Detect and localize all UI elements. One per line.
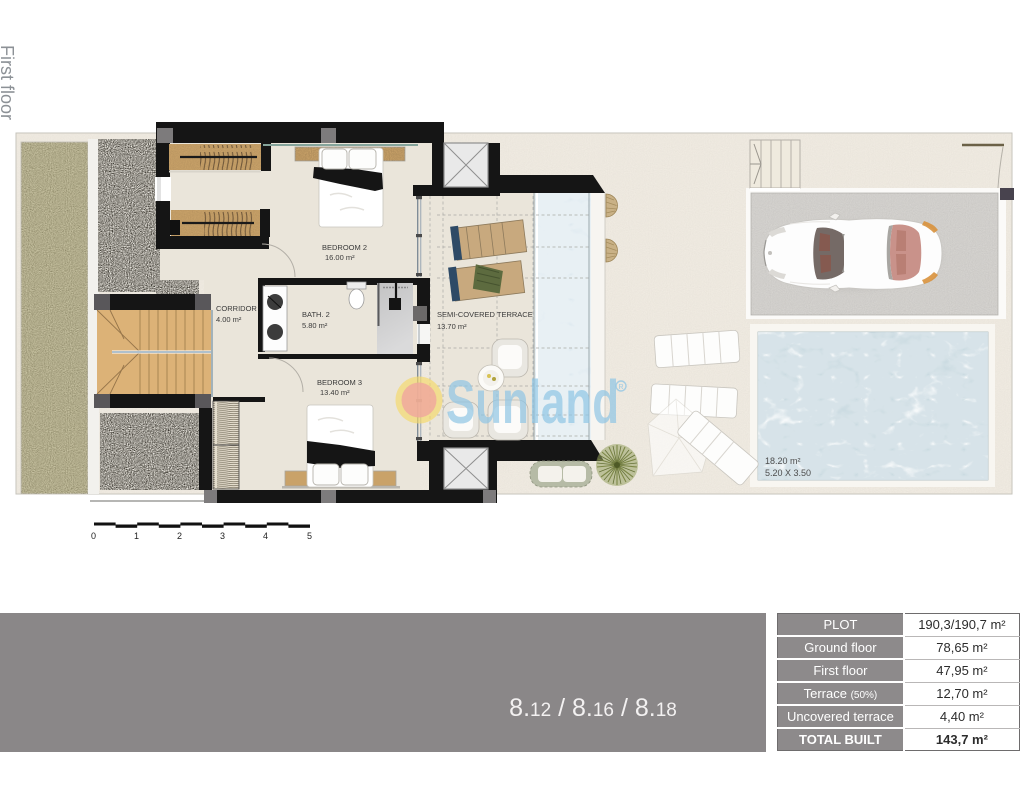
- svg-text:SEMI-COVERED TERRACE: SEMI-COVERED TERRACE: [437, 310, 533, 319]
- svg-text:18.20 m²: 18.20 m²: [765, 456, 801, 466]
- svg-text:2: 2: [177, 531, 182, 541]
- svg-text:5.80 m²: 5.80 m²: [302, 321, 328, 330]
- svg-text:BEDROOM 2: BEDROOM 2: [322, 243, 367, 252]
- svg-text:Sunland: Sunland: [446, 368, 619, 436]
- svg-text:4.00 m²: 4.00 m²: [216, 315, 242, 324]
- svg-text:5: 5: [307, 531, 312, 541]
- svg-text:CORRIDOR: CORRIDOR: [216, 304, 257, 313]
- svg-text:16.00 m²: 16.00 m²: [325, 253, 355, 262]
- svg-text:13.70 m²: 13.70 m²: [437, 322, 467, 331]
- svg-text:3: 3: [220, 531, 225, 541]
- svg-text:BATH. 2: BATH. 2: [302, 310, 330, 319]
- svg-text:0: 0: [91, 531, 96, 541]
- svg-text:5.20 X 3.50: 5.20 X 3.50: [765, 468, 811, 478]
- svg-text:13.40 m²: 13.40 m²: [320, 388, 350, 397]
- svg-text:4: 4: [263, 531, 268, 541]
- svg-text:1: 1: [134, 531, 139, 541]
- svg-text:R: R: [619, 384, 624, 391]
- svg-text:BEDROOM 3: BEDROOM 3: [317, 378, 362, 387]
- svg-text:First floor: First floor: [0, 45, 17, 120]
